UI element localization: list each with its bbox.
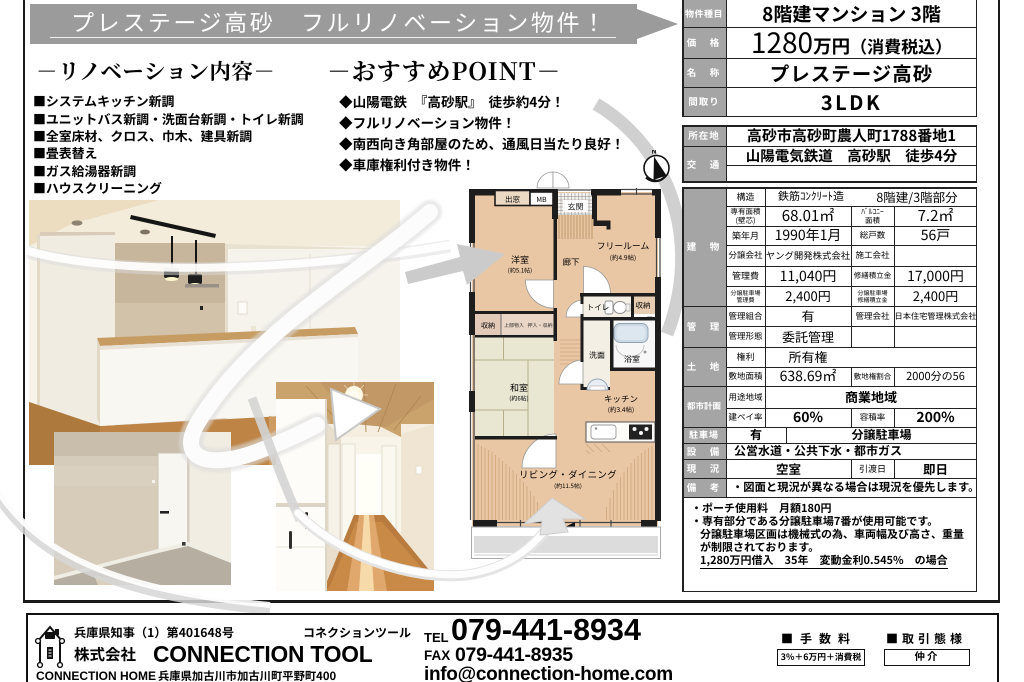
svg-text:廊下: 廊下 <box>562 256 580 268</box>
svg-text:収納: 収納 <box>636 300 651 311</box>
svg-text:上部物入: 上部物入 <box>504 322 524 329</box>
svg-text:洗面: 洗面 <box>589 350 605 361</box>
svg-text:(約3.4帖): (約3.4帖) <box>608 404 634 414</box>
svg-text:洋室: 洋室 <box>511 253 529 266</box>
svg-text:押入・収納: 押入・収納 <box>527 322 552 329</box>
svg-text:収納: 収納 <box>481 321 495 331</box>
svg-text:フリールーム: フリールーム <box>597 239 650 252</box>
svg-text:トイレ: トイレ <box>587 302 610 313</box>
svg-text:N: N <box>652 150 657 156</box>
svg-text:(約4.9帖): (約4.9帖) <box>610 252 636 262</box>
svg-text:(約5.1帖): (約5.1帖) <box>508 266 532 275</box>
svg-text:MB: MB <box>536 195 547 205</box>
svg-text:出窓: 出窓 <box>505 194 520 205</box>
svg-text:浴室: 浴室 <box>624 354 640 365</box>
svg-text:玄関: 玄関 <box>568 202 584 213</box>
